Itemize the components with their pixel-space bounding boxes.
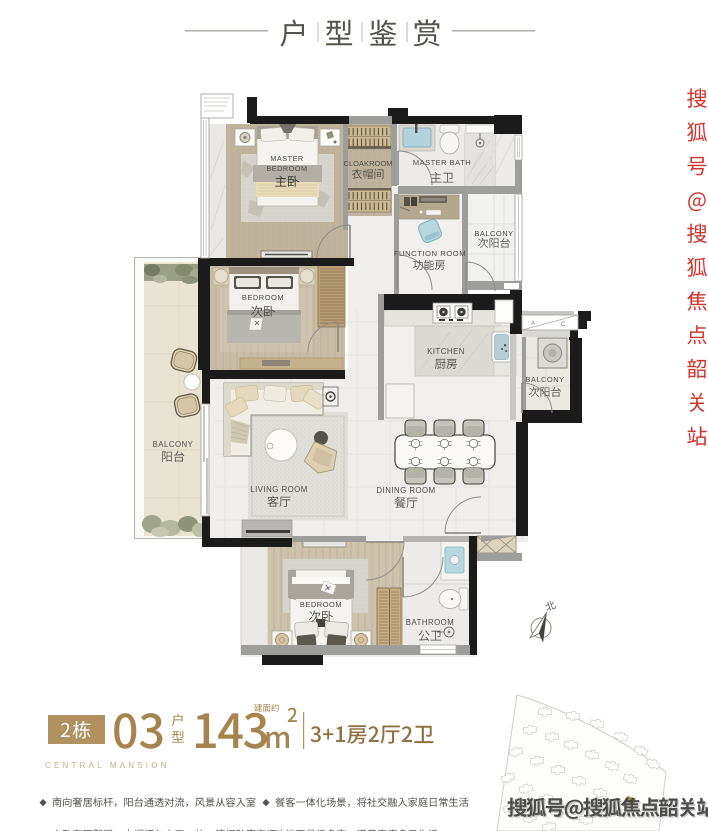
svg-text:DINING ROOM: DINING ROOM [376, 486, 435, 495]
svg-text:LIVING ROOM: LIVING ROOM [250, 485, 308, 494]
svg-text:MASTER BATH: MASTER BATH [413, 158, 471, 167]
svg-text:BEDROOM: BEDROOM [242, 293, 284, 302]
svg-text:C: C [561, 322, 566, 328]
svg-text:BEDROOM: BEDROOM [266, 164, 307, 173]
svg-text:A: A [531, 321, 535, 327]
svg-text:CLOAKROOM: CLOAKROOM [344, 159, 393, 168]
svg-text:CENTRAL MANSION: CENTRAL MANSION [45, 761, 170, 770]
svg-text:BATHROOM: BATHROOM [406, 618, 454, 627]
svg-text:FUNCTION ROOM: FUNCTION ROOM [394, 249, 466, 258]
svg-text:MASTER: MASTER [270, 154, 303, 163]
svg-text:BALCONY: BALCONY [525, 375, 564, 384]
svg-text:KITCHEN: KITCHEN [427, 347, 465, 356]
svg-text:BALCONY: BALCONY [474, 229, 513, 238]
svg-text:BALCONY: BALCONY [153, 440, 194, 449]
svg-text:BEDROOM: BEDROOM [300, 600, 342, 609]
